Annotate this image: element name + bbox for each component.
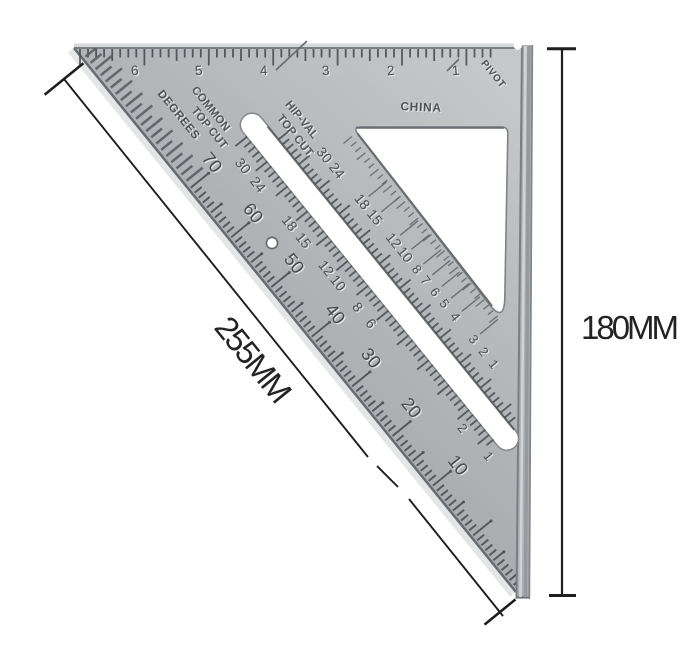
svg-text:6: 6 [130,63,139,78]
svg-text:3: 3 [321,63,330,78]
svg-text:180MM: 180MM [581,309,677,346]
svg-text:CHINA: CHINA [400,99,442,114]
svg-text:5: 5 [194,63,203,78]
svg-text:2: 2 [386,63,395,78]
